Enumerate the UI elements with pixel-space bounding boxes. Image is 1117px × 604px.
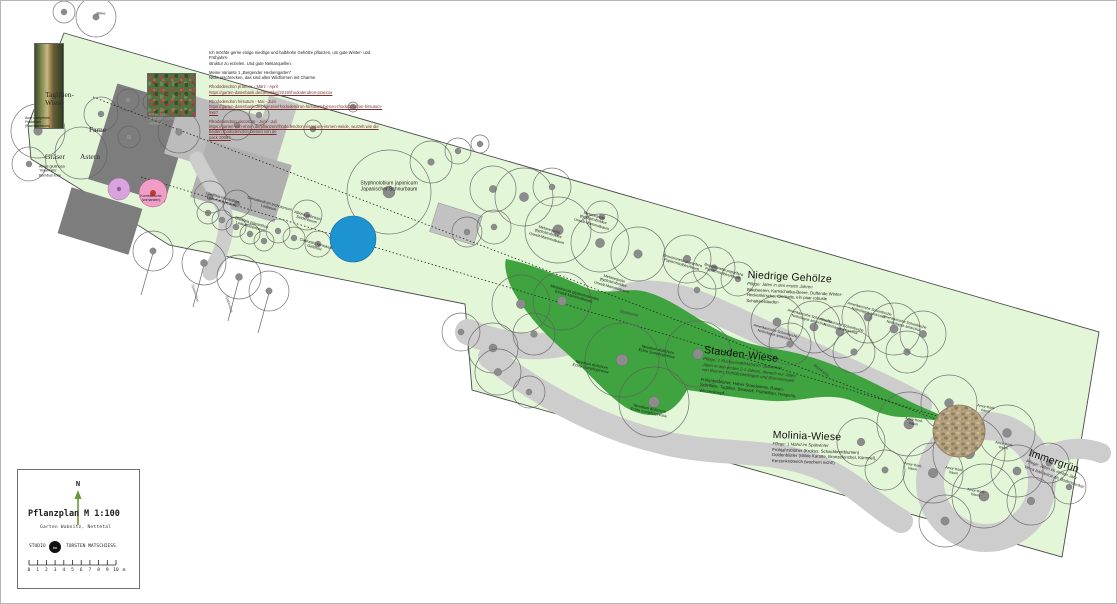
- tree-trunk-dot: [516, 299, 525, 308]
- scale-number: 10: [113, 568, 119, 573]
- tree-trunk-dot: [200, 259, 207, 266]
- tree-trunk-dot: [928, 468, 938, 478]
- tree-trunk-dot: [464, 229, 470, 235]
- tree-trunk-dot: [219, 217, 225, 223]
- plant-label-line: (vorhanden): [140, 198, 161, 202]
- notes-block: Ich möchte gerne einige niedrige und hal…: [209, 50, 387, 144]
- plant-label: Ribes spec.Fuchsien-Johan-nisbeere: [149, 112, 177, 125]
- tree-trunk-dot: [26, 161, 32, 167]
- tree-trunk-dot: [904, 349, 911, 356]
- plant-label-line: Bambus-Erle: [39, 173, 65, 177]
- scale-number: 8: [97, 568, 100, 573]
- planting-plan-canvas: Ich möchte gerne einige niedrige und hal…: [0, 0, 1117, 604]
- tree-trunk-dot: [235, 273, 242, 280]
- zone-label: Farne: [89, 126, 106, 134]
- note-paragraph: Rhododendron praecox - März - Aprilhttps…: [209, 84, 387, 95]
- scale-number: 2: [45, 568, 48, 573]
- plant-label: Alnus glutinosa'Imperialis'Bambus-Erle: [39, 164, 65, 177]
- tree-trunk-dot: [941, 517, 949, 525]
- tree-trunk-dot: [455, 148, 461, 154]
- north-label: N: [76, 480, 80, 488]
- tree-trunk-dot: [526, 389, 532, 395]
- tree-trunk-dot: [694, 287, 700, 293]
- studio-name: TORSTEN MATSCHIESS: [66, 544, 116, 549]
- zone-label: Gräser: [45, 153, 65, 161]
- tree-trunk-dot: [549, 184, 555, 190]
- scale-unit: m: [123, 568, 126, 573]
- tree-trunk-dot: [595, 238, 604, 247]
- scale-number: 4: [62, 568, 65, 573]
- tree-trunk-dot: [494, 368, 501, 375]
- note-line: https://garten-datenbank.de/pflanzen/rho…: [209, 104, 387, 115]
- plant-label: Birke: [96, 12, 105, 17]
- note-line: https://garten-von-ehren.de/pflanzen/rho…: [209, 124, 387, 135]
- note-line: Ich möchte gerne einige niedrige und hal…: [209, 50, 387, 61]
- tree-trunk-dot: [531, 331, 538, 338]
- stone-circle-terrace: [933, 405, 985, 457]
- tree-trunk-dot: [634, 250, 643, 259]
- zone-label-line: Gräser: [45, 153, 65, 161]
- tree-trunk-dot: [291, 235, 297, 241]
- tree-trunk-dot: [150, 248, 156, 254]
- plant-label-line: (Nachbarbaum): [25, 124, 50, 128]
- plant-label-line: Birke: [96, 12, 105, 17]
- tree-trunk-dot: [1013, 467, 1021, 475]
- note-line: struktur zu erzielen. Und gute Nektarque…: [209, 61, 387, 66]
- tree-trunk-dot: [176, 129, 183, 136]
- flowering-currant-photo: [147, 73, 196, 117]
- tree-trunk-dot: [489, 344, 497, 352]
- scale-bar: [29, 560, 116, 565]
- tree-trunk-dot: [266, 288, 272, 294]
- tree-trunk-dot: [773, 318, 781, 326]
- tree-trunk-dot: [98, 111, 104, 117]
- scale-number: 5: [71, 568, 74, 573]
- plant-label: Styphnolobium japonicumJapanischer Schnu…: [360, 181, 417, 193]
- scale-number: 3: [54, 568, 57, 573]
- tree-trunk-dot: [428, 159, 435, 166]
- zone-label: Taglilien-Wiese: [45, 91, 74, 108]
- tree-trunk-dot: [616, 354, 628, 366]
- tree-trunk-dot: [458, 329, 464, 335]
- scale-number: 6: [80, 568, 83, 573]
- note-paragraph: Ich möchte gerne einige niedrige und hal…: [209, 50, 387, 66]
- note-line: pack 2008?: [209, 135, 387, 140]
- note-line: https://garten-datenbank.de/de/artikel/2…: [209, 90, 387, 95]
- tree-trunk-dot: [1027, 497, 1035, 505]
- tree-trunk-dot: [125, 97, 131, 103]
- tree-trunk-dot: [519, 192, 528, 201]
- area-description: Niedrige GehölzePflege: Jäten in den ers…: [746, 269, 843, 308]
- note-paragraph: Rhododendron viscosum - Juni - Julihttps…: [209, 119, 387, 141]
- tree-trunk-dot: [1003, 429, 1012, 438]
- tree-trunk-dot: [693, 349, 704, 360]
- studio-prefix: STUDIO: [29, 544, 46, 549]
- tree-trunk-dot: [882, 467, 888, 473]
- plant-label-line: nisbeere: [149, 121, 177, 125]
- plan-scale: M 1:100: [84, 509, 120, 519]
- tree-trunk-dot: [126, 134, 132, 140]
- zone-label-line: Farne: [89, 126, 106, 134]
- tree-trunk-dot: [491, 224, 497, 230]
- note-paragraph: Rhododendron hirsutum - Mai - Junihttps:…: [209, 99, 387, 115]
- note-line: Nicht erschrecken, das sind alles Wildfo…: [209, 75, 387, 80]
- tree-trunk-dot: [261, 238, 267, 244]
- tree-trunk-dot: [477, 141, 483, 147]
- plant-label: Kornelkirsche(vorhanden): [140, 194, 161, 202]
- scale-number: 0: [28, 568, 31, 573]
- zone-label: Astern: [80, 153, 100, 161]
- note-paragraph: Meine Variante 1 „Bergender Heckengarten…: [209, 70, 387, 81]
- plan-title: Pflanzplan: [28, 509, 79, 519]
- area-description: Molinia-WiesePflege: 1 Mahd im Spätwinte…: [772, 429, 878, 467]
- scale-number: 9: [106, 568, 109, 573]
- tree-trunk-dot: [275, 228, 281, 234]
- tree-trunk-dot: [557, 296, 566, 305]
- tree-trunk-dot: [61, 9, 67, 15]
- title-block: N Pflanzplan M 1:100 Garten Wabnitz, Net…: [17, 469, 140, 589]
- studio-logo: tm: [49, 541, 61, 553]
- scale-number: 7: [89, 568, 92, 573]
- pond-blue-circle: [330, 216, 376, 262]
- plan-subtitle: Garten Wabnitz, Nettetal: [40, 525, 111, 530]
- zone-label-line: Astern: [80, 153, 100, 161]
- tree-trunk-dot: [851, 349, 858, 356]
- scale-number: 1: [36, 568, 39, 573]
- plant-label-line: Japanischer Schnurbaum: [360, 187, 417, 193]
- tree-trunk-dot: [247, 231, 253, 237]
- zone-label-line: Wiese: [45, 99, 74, 107]
- plant-label: Acer campestreFeldahorn(Nachbarbaum): [25, 116, 50, 128]
